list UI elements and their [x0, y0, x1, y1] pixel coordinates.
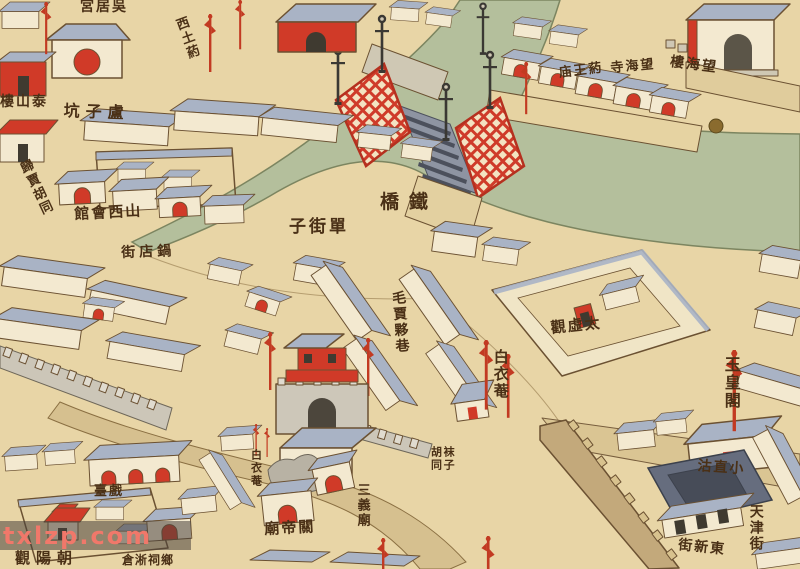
water-dot	[709, 119, 723, 133]
three-arch-hall	[83, 441, 194, 487]
map-scene	[0, 0, 800, 569]
watermark: txlzp.com	[0, 521, 191, 550]
watermark-text: txlzp.com	[0, 522, 152, 550]
temple-building	[46, 24, 130, 78]
map-canvas: 宮居吳西土葯樓山泰坑子盧歸賈胡同館會西山街店鍋橋鐵子街單庙王葯寺海望樓海望毛賈夥…	[0, 0, 800, 569]
